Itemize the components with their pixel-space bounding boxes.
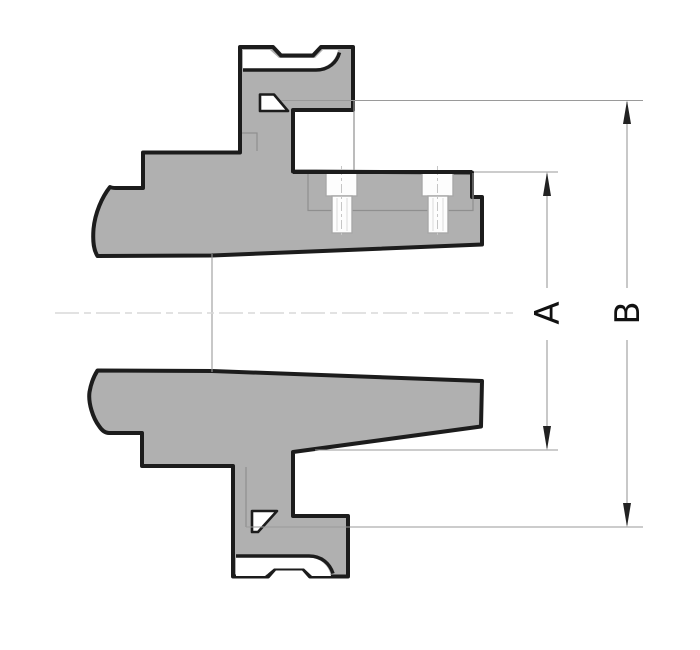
- dimension-b-label: B: [608, 301, 648, 324]
- dimension-b: B: [246, 101, 648, 528]
- engineering-drawing: A B: [0, 0, 700, 650]
- clamp-groove-top: [243, 50, 338, 69]
- clamp-groove-bottom: [236, 558, 331, 577]
- hub-lower-section: [89, 371, 482, 577]
- dim-b-arrow-top: [623, 101, 631, 125]
- dim-a-arrow-bottom: [543, 426, 551, 450]
- dimension-a-label: A: [528, 301, 568, 324]
- engineering-drawing-page: A B: [0, 0, 700, 650]
- dim-b-arrow-bottom: [623, 503, 631, 527]
- hub-upper-section: [93, 47, 482, 256]
- dim-a-arrow-top: [543, 172, 551, 196]
